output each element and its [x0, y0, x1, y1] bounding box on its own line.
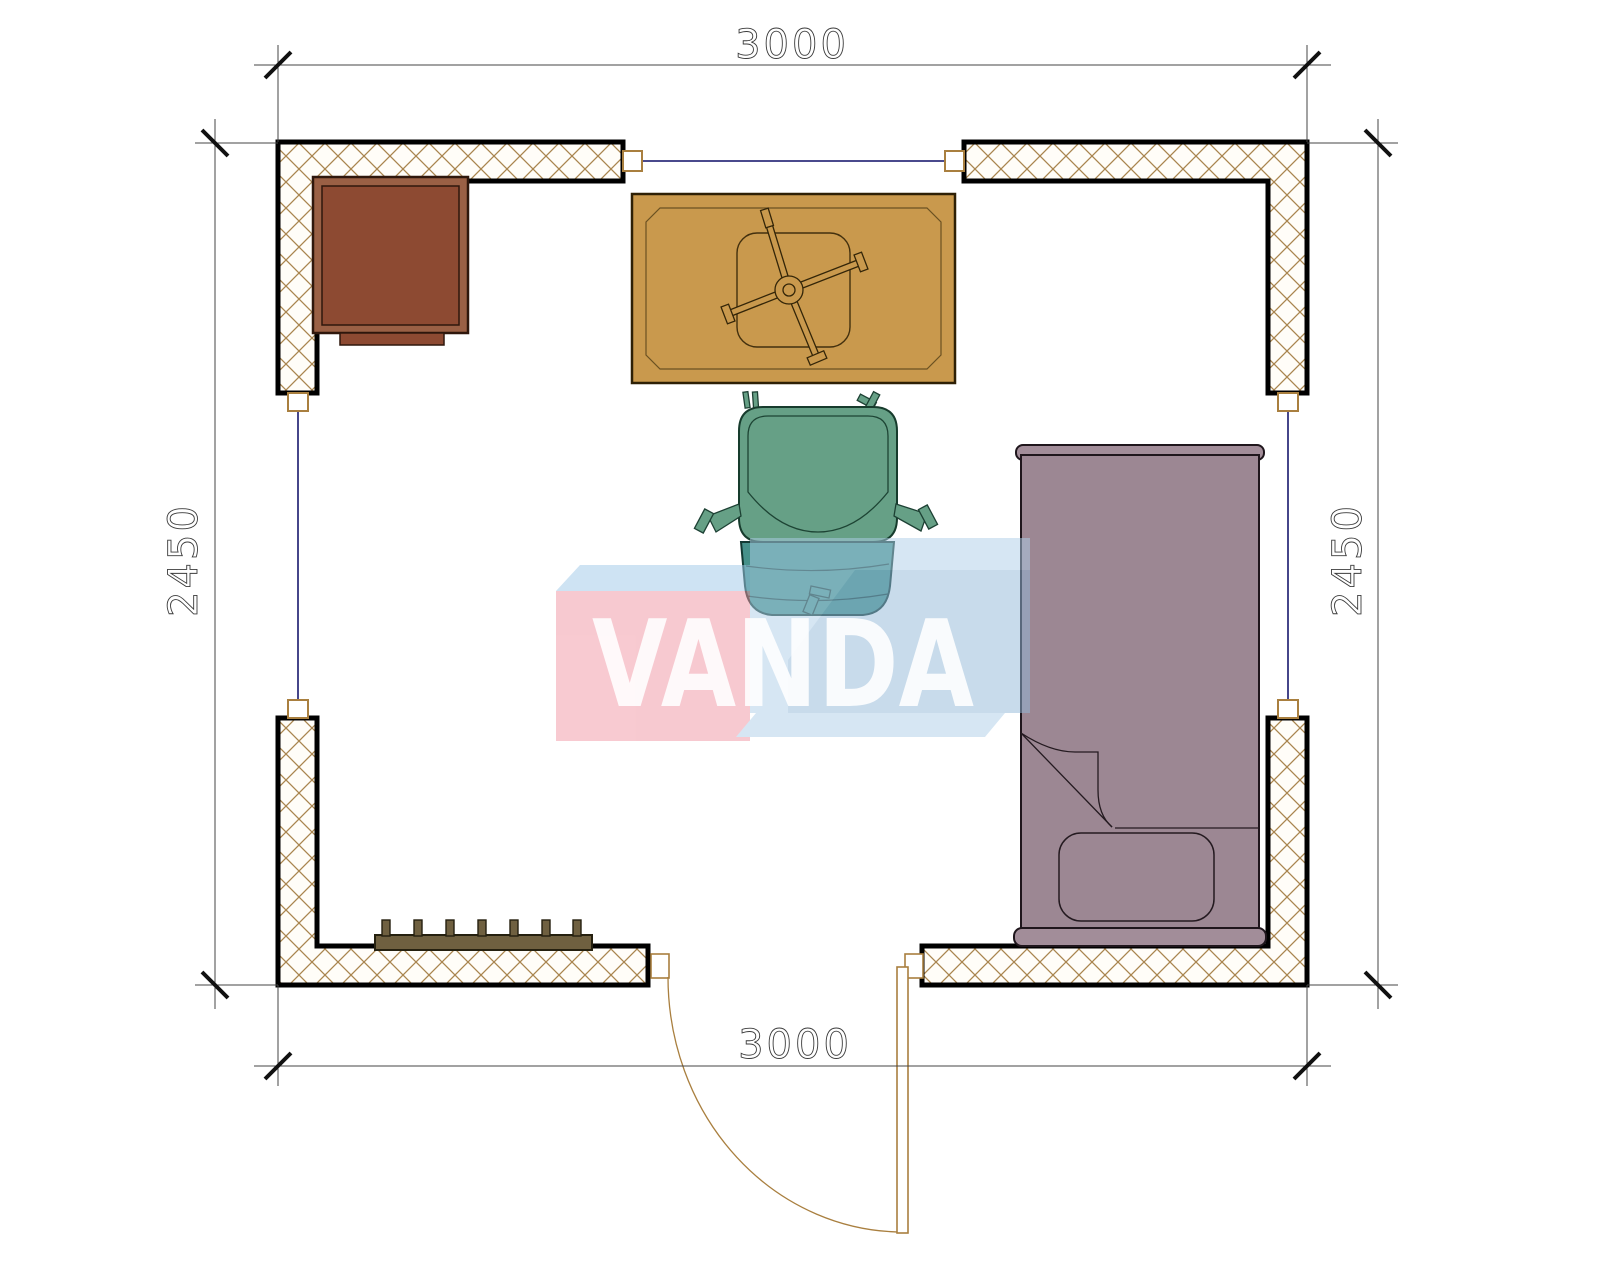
bed-pillow: [1059, 833, 1214, 921]
dim-top: 3000: [735, 22, 849, 68]
window-jamb: [945, 151, 964, 171]
dim-right: 2450: [1325, 503, 1371, 617]
window-jamb: [288, 393, 308, 411]
door-jamb: [651, 954, 669, 978]
window-jamb: [1278, 393, 1298, 411]
window-jamb: [623, 151, 642, 171]
floor-plan-drawing: VANDA 3000 3000 2450 2450: [0, 0, 1600, 1280]
window-jamb: [288, 700, 308, 718]
door-leaf: [897, 967, 908, 1233]
chair-seat: [739, 407, 897, 542]
corner-cabinet: [313, 177, 468, 345]
floor-plan-canvas: VANDA 3000 3000 2450 2450: [0, 0, 1600, 1280]
door: [651, 954, 923, 1233]
door-swing-arc: [668, 977, 903, 1232]
table: [632, 194, 955, 383]
dim-bottom: 3000: [738, 1022, 852, 1068]
radiator: [375, 920, 592, 950]
window-jamb: [1278, 700, 1298, 718]
single-bed: [1014, 445, 1266, 946]
wall-top-right: [964, 142, 1307, 393]
watermark-text: VANDA: [592, 596, 974, 735]
dim-left: 2450: [161, 503, 207, 617]
bed-footboard: [1014, 928, 1266, 946]
